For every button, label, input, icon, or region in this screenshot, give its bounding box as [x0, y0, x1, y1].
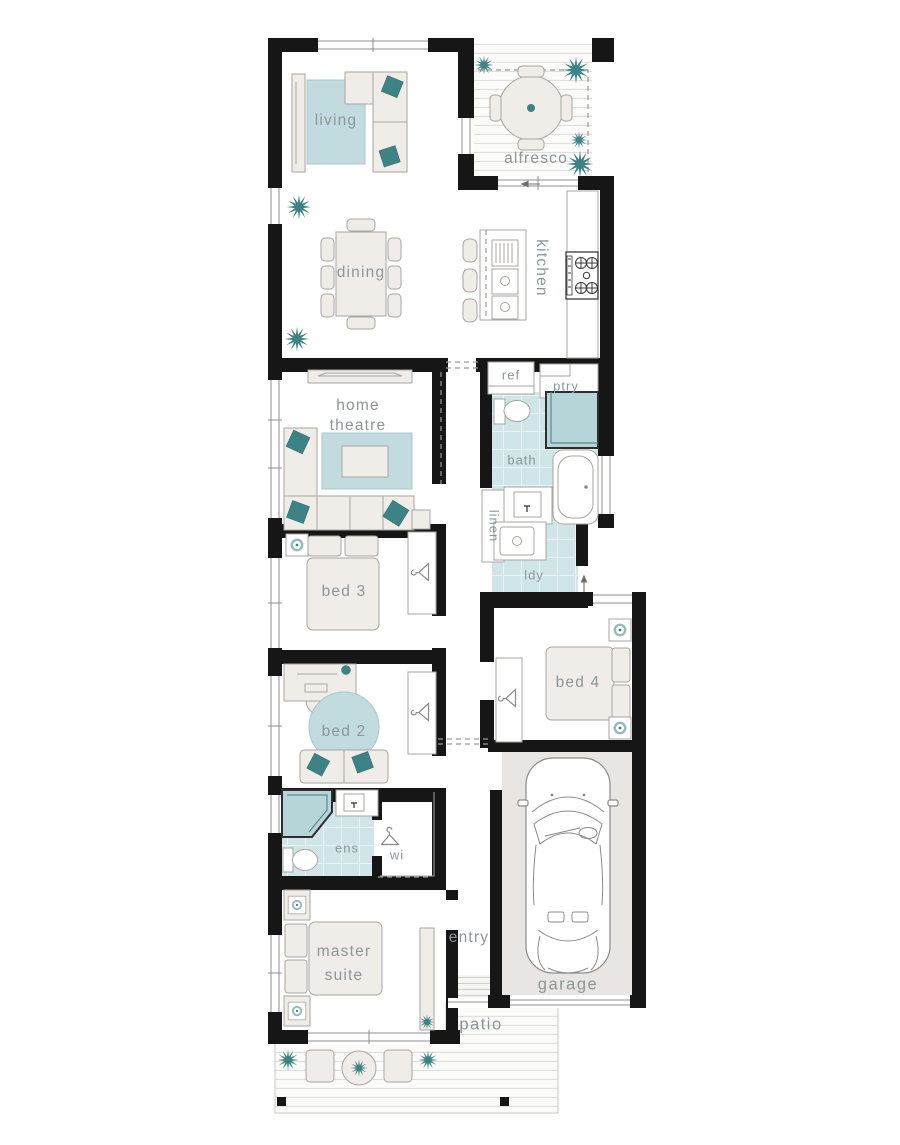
window — [593, 592, 632, 606]
car-icon — [518, 758, 618, 973]
arrow-icon — [581, 576, 586, 592]
front-door — [448, 998, 488, 1008]
chair — [490, 95, 501, 121]
room-home-theatre — [284, 370, 430, 530]
chair — [321, 238, 334, 261]
wardrobe — [496, 658, 522, 742]
pillow — [612, 685, 630, 719]
window — [268, 188, 282, 224]
chair — [518, 139, 544, 150]
cooktop-icon — [566, 252, 598, 299]
window — [598, 456, 614, 514]
chair — [321, 294, 334, 317]
bed4-label: bed 4 — [556, 674, 601, 691]
window — [268, 935, 282, 1012]
chair — [347, 317, 375, 329]
plant-icon — [342, 666, 351, 675]
alfresco-label: alfresco — [504, 150, 568, 167]
walk-in-robe-label: wi — [389, 847, 404, 862]
kitchen-label: kitchen — [533, 239, 550, 297]
chair — [384, 1050, 412, 1082]
window — [268, 380, 282, 518]
chair — [321, 266, 334, 289]
vanity-sink — [504, 487, 552, 524]
plant-icon — [285, 327, 310, 352]
pillow — [308, 536, 341, 556]
chair — [306, 1050, 334, 1082]
wardrobe — [408, 532, 436, 614]
wardrobe — [408, 672, 436, 754]
garage-label: garage — [538, 975, 598, 993]
master-suite-label-line1: master — [317, 943, 372, 960]
side-table — [412, 510, 430, 529]
bedside-table — [284, 996, 310, 1026]
shower — [546, 392, 598, 448]
pillow — [345, 536, 378, 556]
pillow — [285, 924, 307, 957]
lamp-icon — [609, 717, 631, 739]
laundry-sink — [500, 527, 534, 555]
room-kitchen — [463, 191, 598, 358]
pantry-label: ptry — [553, 378, 579, 393]
chair — [347, 219, 375, 231]
lamp-icon — [288, 896, 306, 914]
floorplan-page: living alfresco dining kitchen ref ptry … — [0, 0, 900, 1145]
floorplan-drawing: living alfresco dining kitchen ref ptry … — [0, 0, 900, 1145]
window — [268, 558, 282, 648]
bed3-label: bed 3 — [322, 583, 367, 600]
lamp-icon — [286, 534, 308, 556]
kitchen-island — [480, 230, 526, 320]
plant-icon — [287, 195, 312, 220]
hanger-icon — [382, 827, 399, 844]
room-dining — [285, 219, 401, 351]
patio-post — [277, 1097, 286, 1106]
room-bed3 — [286, 532, 436, 630]
stool — [463, 269, 477, 292]
chair — [388, 294, 401, 317]
room-living — [287, 72, 407, 219]
window — [308, 1030, 430, 1044]
mirror — [608, 800, 618, 806]
chair — [388, 238, 401, 261]
pillow — [285, 960, 307, 993]
linen-label: linen — [487, 510, 502, 542]
window — [268, 795, 282, 833]
vanity-sink — [336, 790, 378, 816]
laundry-label: ldy — [524, 567, 544, 582]
bathtub-icon — [553, 450, 598, 524]
patio-label: patio — [459, 1015, 502, 1033]
stool — [463, 239, 477, 262]
toilet-icon — [283, 848, 318, 872]
home-theatre-label-line2: theatre — [330, 417, 387, 434]
bed2-label: bed 2 — [322, 723, 367, 740]
entry-label: entry — [449, 929, 489, 946]
sofa-bed — [300, 750, 388, 783]
room-garage — [518, 758, 618, 973]
master-suite-label-line2: suite — [325, 967, 364, 984]
pillow — [612, 648, 630, 682]
bath-label: bath — [507, 452, 536, 467]
sliding-door — [498, 176, 578, 190]
room-walk-in-robe — [380, 792, 434, 876]
home-theatre-label-line1: home — [336, 397, 380, 414]
ensuite-label: ens — [335, 840, 359, 855]
stool — [463, 299, 477, 322]
chair — [561, 95, 572, 121]
tv-cabinet — [292, 74, 305, 172]
patio-post — [500, 1097, 509, 1106]
lamp-icon — [288, 1002, 306, 1020]
living-label: living — [315, 112, 358, 129]
window — [318, 38, 428, 52]
bedside-table — [284, 890, 310, 920]
ottoman — [342, 446, 388, 477]
mirror — [518, 800, 528, 806]
glass-door — [458, 118, 474, 154]
window — [268, 676, 282, 776]
chair — [518, 66, 544, 77]
dining-label: dining — [337, 264, 386, 281]
lamp-icon — [609, 619, 631, 641]
chair — [388, 266, 401, 289]
garage-door — [510, 995, 630, 1008]
ref-label: ref — [502, 367, 520, 382]
